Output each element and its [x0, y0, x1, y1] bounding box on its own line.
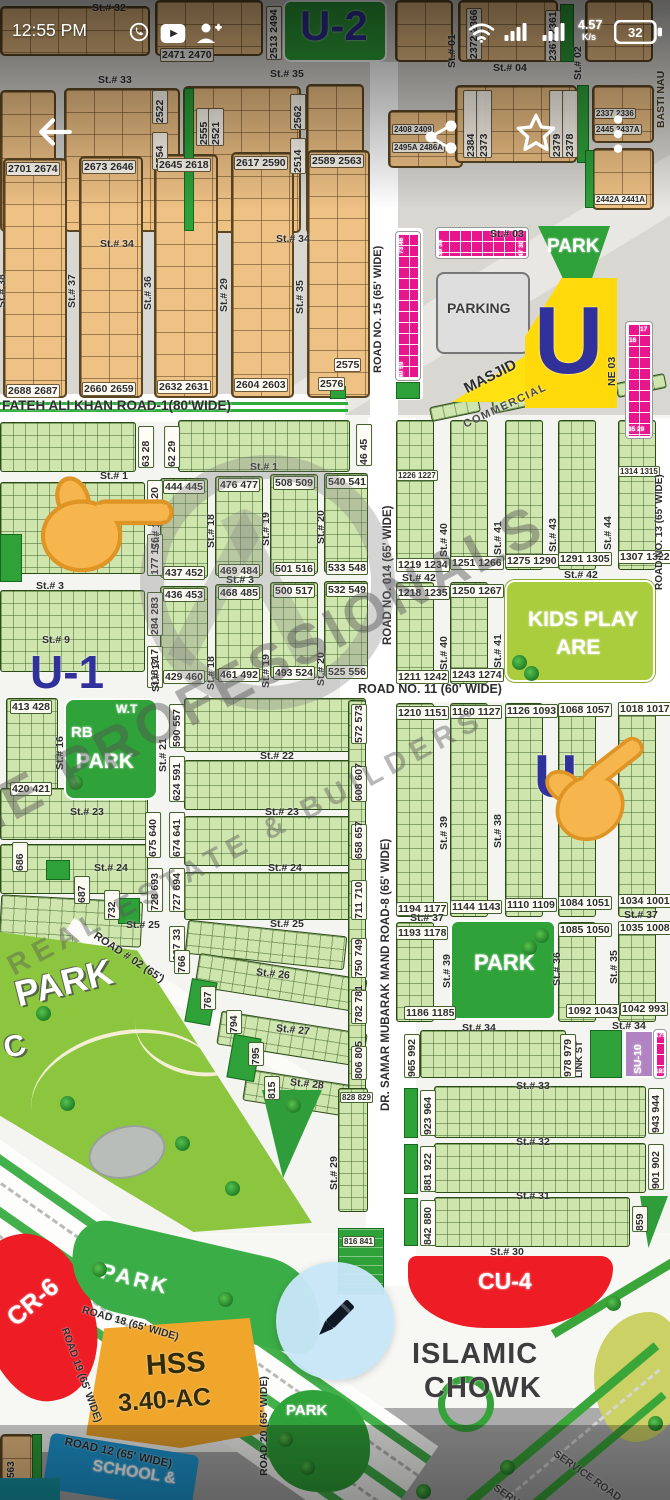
sector-label: U: [534, 286, 603, 396]
street-label: St.# 32: [516, 1136, 550, 1148]
edit-fab[interactable]: [276, 1262, 394, 1380]
plot-number: 624 591: [169, 756, 185, 802]
plot-number: 1035 1008: [618, 921, 670, 935]
plot-number: 2471 2470: [160, 48, 214, 62]
plot-strip-green: [404, 1198, 418, 1246]
street-label: St.# 17: [150, 640, 162, 692]
plot-number: 1193 1178: [396, 926, 448, 940]
plot-number: 1126 1093: [505, 704, 558, 718]
plot-number: 2378: [562, 90, 578, 158]
road-label: DR. SAMAR MUBARAK MAND ROAD-8 (65' WIDE): [380, 756, 393, 1111]
street-label: St.# 36: [142, 254, 154, 310]
plot-number: 436 453: [163, 588, 205, 602]
plot-number: 1160 1127: [450, 705, 502, 719]
plot-number: 46 45: [356, 424, 372, 466]
signal-bars-icon: [504, 22, 529, 42]
tree-icon: [175, 1136, 190, 1151]
plot-block: [420, 1030, 566, 1078]
tree-icon: [300, 1460, 315, 1475]
plot-number: 413 428: [10, 700, 52, 714]
street-label: St.# 34: [100, 238, 134, 250]
street-label: St.# 35: [608, 944, 620, 984]
plot-strip-green: [396, 382, 420, 399]
plot-block: [434, 1086, 646, 1138]
sector-label: U-1: [30, 646, 104, 699]
status-time: 12:55 PM: [12, 20, 87, 40]
street-label: St.# 38: [492, 793, 504, 848]
street-label: St.# 33: [516, 1080, 550, 1092]
wifi-icon: [468, 22, 495, 43]
street-label: St.# 23: [265, 806, 299, 818]
tree-icon: [606, 1296, 621, 1311]
plot-number: 2373: [476, 90, 492, 158]
plot-number: 572 573: [351, 704, 367, 744]
plot-number: 420 421: [10, 782, 52, 796]
road-label: ROAD NO. 014 (65' WIDE): [382, 440, 395, 645]
plot-number: 183: [655, 1068, 666, 1075]
person-add-icon: [196, 22, 222, 44]
chowk-label: CHOWK: [424, 1372, 542, 1405]
street-label: St.# 25: [270, 918, 304, 930]
street-label: St.# 3: [226, 574, 254, 586]
street-label: St.# 36: [551, 946, 563, 986]
street-label: St.# 32: [92, 2, 126, 14]
park-label: PARK: [286, 1402, 327, 1419]
plot-number: 658 657: [351, 824, 367, 860]
street-label: St.# 19: [260, 491, 272, 546]
street-label: St.# 18: [205, 493, 217, 548]
street-label: St.# 04: [493, 62, 527, 74]
plot-number: 1085 1050: [558, 923, 612, 937]
tree-icon: [278, 1432, 293, 1447]
street-label: St.# 37: [410, 912, 444, 924]
parking-label: PARKING: [447, 300, 511, 316]
street-label: St.# 9: [42, 634, 70, 646]
plot-number: 2513 2494: [266, 6, 282, 60]
back-arrow-icon[interactable]: [36, 116, 74, 148]
plot-number: 1042 993: [620, 1002, 668, 1016]
plot-block: [184, 872, 366, 920]
su10-label: SU-10: [632, 1036, 644, 1074]
plot-number: 501 516: [273, 562, 315, 576]
street-label: St.# 38: [0, 252, 8, 308]
plot-number: 1092 1043: [566, 1004, 620, 1018]
tree-icon: [286, 1098, 301, 1113]
teal-block: [0, 1478, 60, 1500]
plot-number: 590 557: [169, 704, 185, 748]
plot-number: 965 992: [404, 1034, 420, 1078]
plot-number: 2660 2659: [82, 382, 136, 396]
plot-number: 525 556: [326, 665, 368, 679]
plot-block: [184, 698, 366, 752]
street-label: St.# 01: [446, 22, 458, 68]
street-label: St.# 19: [260, 636, 272, 688]
plot-number: 782 781: [351, 990, 367, 1024]
plot-number: 2589 2563: [310, 154, 364, 168]
plot-number: 859: [632, 1206, 648, 1232]
plot-number: 828 829: [340, 1092, 373, 1103]
plot-number: 461 492: [218, 668, 260, 682]
street-label: St.# 35: [294, 258, 306, 314]
plot-number: 675 640: [145, 812, 161, 858]
kids-play-label: KIDS PLAY: [528, 608, 638, 632]
youtube-icon: [160, 24, 186, 43]
plot-number: 1243 1274: [450, 668, 504, 682]
street-label: LINK ST: [575, 1032, 586, 1078]
plot-block: [434, 1143, 646, 1193]
plot-number: 284 283: [147, 592, 163, 636]
pencil-icon: [308, 1292, 362, 1346]
plot-number: 540 541: [326, 475, 368, 489]
plot-number: 2575: [334, 358, 361, 372]
plot-block: [618, 420, 656, 570]
street-label: St.# 37: [624, 909, 658, 921]
plot-number: 901 902: [648, 1144, 664, 1190]
street-label: St.# 33: [98, 74, 132, 86]
plot-number: 2688 2687: [6, 384, 60, 398]
plot-strip-green: [585, 150, 594, 208]
plot-number: 429 460: [163, 670, 205, 684]
plot-block: [505, 420, 543, 570]
plot-number: 750 749: [351, 938, 367, 978]
plot-number: 1291 1305: [558, 552, 612, 566]
road-label: ROAD NO. 11 (60' WIDE): [358, 682, 502, 696]
street-label: St.# 44: [602, 498, 614, 550]
plot-number: 39 38: [437, 230, 444, 256]
plot-number: 1018 1017: [618, 702, 670, 716]
plot-number: 686: [12, 842, 28, 872]
plot-number: 508 509: [273, 476, 315, 490]
tree-icon: [534, 928, 549, 943]
street-label: St.# 37: [66, 252, 78, 308]
plot-block: [231, 152, 294, 398]
street-label: St.# 1: [250, 461, 278, 473]
street-label: St.# 29: [218, 256, 230, 312]
plot-number: 47 30: [518, 231, 525, 257]
road-label: ROAD 20 (65' WIDE): [258, 1356, 270, 1476]
park-label: PARK: [76, 750, 134, 774]
plot-number: 1219 1234: [396, 558, 450, 572]
plot-number: 732: [104, 890, 120, 920]
street-label: St.# 39: [441, 948, 453, 988]
signal-bars-icon: [542, 22, 567, 42]
street-label: St.# 20: [315, 489, 327, 544]
plot-block: [450, 703, 488, 917]
street-label: St.# 41: [492, 616, 504, 668]
plot-number: 2522: [152, 90, 168, 124]
plot-number: 1275 1290: [505, 554, 559, 568]
park-block-small: [0, 534, 22, 582]
road-label: ROAD NO. 15 (65' WIDE): [372, 205, 385, 373]
plot-number: 728 693: [147, 868, 163, 912]
tree-icon: [68, 775, 83, 790]
tree-icon: [225, 1181, 240, 1196]
plot-number: 1034 1001: [618, 894, 670, 908]
street-label: St.# 42: [564, 569, 598, 581]
plot-number: 476 477: [218, 478, 260, 492]
park-label: RB: [71, 724, 93, 741]
plot-number: 532 549: [326, 583, 368, 597]
plot-block: [3, 158, 67, 398]
plot-number: 795: [248, 1042, 264, 1066]
plot-block: [184, 760, 366, 810]
plot-strip-green: [32, 1434, 42, 1482]
plot-block: [338, 1088, 368, 1212]
plot-block: [395, 0, 453, 62]
park-label: W.T: [116, 703, 137, 717]
chowk-label: ISLAMIC: [412, 1338, 538, 1371]
plot-number: 1250 1267: [450, 584, 504, 598]
street-label: St.# 24: [94, 862, 128, 874]
tree-icon: [524, 666, 539, 681]
street-label: St.# 16: [54, 722, 66, 770]
pointing-hand-icon: [28, 462, 178, 584]
plot-strip-green: [404, 1088, 418, 1138]
plot-number: 2617 2590: [234, 156, 288, 170]
plot-number: 816 841: [342, 1236, 375, 1247]
plot-number: 2673 2646: [82, 160, 136, 174]
road-label: ROAD NO. 13 (65' WIDE): [654, 428, 666, 590]
street-label: St.# 39: [438, 795, 450, 850]
park-block-small: [590, 1030, 622, 1078]
plot-number: 923 964: [420, 1090, 436, 1136]
plot-number: 1144 1143: [450, 900, 502, 914]
plot-number: 1251 1266: [450, 556, 504, 570]
plot-number: 17: [640, 326, 647, 333]
street-label: St.# 40: [438, 618, 450, 670]
plot-number: 1084 1051: [558, 896, 612, 910]
share-icon[interactable]: [424, 118, 460, 156]
street-label: St.# 02: [572, 40, 584, 80]
street-label: St.# 43: [547, 500, 559, 552]
plot-number: 60 59: [398, 358, 405, 378]
plot-number: 2632 2631: [157, 380, 211, 394]
plot-number: 794: [226, 1010, 242, 1034]
plot-number: 1218 1235: [396, 586, 450, 600]
plot-block: [396, 703, 434, 917]
plot-number: 73 46: [398, 234, 405, 254]
street-label: St.# 40: [438, 505, 450, 557]
sector-label: U-2: [300, 2, 368, 50]
plot-number: 766: [174, 950, 190, 974]
street-label: St.# 34: [276, 233, 310, 245]
plot-number: 687: [74, 876, 90, 904]
street-label: St.# 24: [268, 862, 302, 874]
net-speed: 4.57: [578, 18, 602, 32]
plot-number: 608 607: [351, 766, 367, 802]
cu4-label: CU-4: [478, 1268, 532, 1294]
tree-icon: [500, 1460, 515, 1475]
plot-number: 674 641: [169, 812, 185, 858]
plot-block: [396, 420, 434, 570]
plot-number: 500 517: [273, 584, 315, 598]
plot-number: 842 880: [420, 1200, 436, 1246]
street-label: St.# 25: [126, 919, 160, 931]
street-label: St.# 42: [402, 572, 436, 584]
street-label: St.# 35: [270, 68, 304, 80]
street-label: St.# 22: [260, 750, 294, 762]
plot-number: 806 805: [351, 1046, 367, 1080]
plot-block: [450, 420, 488, 570]
street-label: St.# 34: [612, 1020, 646, 1032]
plot-number: 2521: [208, 108, 224, 146]
street-label: St.# 21: [157, 724, 169, 772]
plot-strip-green: [46, 860, 70, 880]
plot-block: [184, 816, 366, 866]
plot-number: 2442A 2441A: [594, 194, 647, 205]
plot-number: 468 485: [218, 586, 260, 600]
street-label: St.# 20: [315, 634, 327, 686]
plot-block: [434, 1197, 630, 1247]
street-label: St.# 30: [490, 1246, 524, 1258]
plot-number: 1110 1109: [505, 898, 557, 912]
street-label: St.# 23: [70, 806, 104, 818]
plot-number: 711 710: [351, 880, 367, 920]
plot-number: 2701 2674: [6, 162, 60, 176]
star-icon[interactable]: [514, 112, 558, 156]
tree-icon: [92, 1262, 107, 1277]
plot-block: [79, 156, 143, 398]
plot-number: 493 524: [273, 666, 315, 680]
overflow-menu-icon[interactable]: [612, 114, 624, 154]
plot-number: 767: [200, 986, 216, 1010]
battery-icon: 32: [614, 20, 662, 44]
plot-number: 1186 1185: [404, 1006, 456, 1020]
street-label: NE 03: [606, 330, 618, 386]
map-viewer: U-2 St.# 32 2513 2494 2471 2470 2372 236…: [0, 0, 670, 1500]
kids-play-label: ARE: [556, 636, 600, 660]
plot-number: 727 694: [169, 868, 185, 912]
hss-label: HSS: [145, 1346, 207, 1383]
plot-number: 533 548: [326, 561, 368, 575]
plot-strip-green: [404, 1144, 418, 1194]
plot-number: 2576: [318, 377, 345, 391]
plot-number: 815: [264, 1076, 280, 1100]
street-label: St.# 41: [492, 503, 504, 555]
street-label: St.# 29: [328, 1136, 340, 1190]
tree-icon: [60, 1096, 75, 1111]
street-label: St.# 18: [205, 638, 217, 690]
tree-icon: [416, 1484, 431, 1499]
road-label: FATEH ALI KHAN ROAD-1(80'WIDE): [2, 398, 231, 414]
plot-number: 563: [6, 1440, 18, 1478]
street-label: St.# 34: [462, 1022, 496, 1034]
plot-number: 2514: [290, 138, 306, 174]
net-speed-unit: K/s: [582, 32, 596, 42]
plot-number: 2604 2603: [234, 378, 288, 392]
plot-number: 2562: [290, 94, 306, 130]
whatsapp-icon: [128, 21, 150, 43]
tree-icon: [522, 940, 537, 955]
plot-number: 943 944: [648, 1088, 664, 1134]
plot-number: 2645 2618: [157, 158, 211, 172]
plot-number: 175: [655, 1032, 666, 1039]
plot-number: 1210 1151: [396, 706, 449, 720]
park-label: PARK: [547, 236, 599, 258]
tree-icon: [218, 1292, 233, 1307]
plot-block: [558, 420, 596, 570]
tree-icon: [648, 1416, 663, 1431]
plot-number: 16: [629, 337, 636, 344]
street-label: St.# 31: [516, 1190, 550, 1202]
plot-number: 881 922: [420, 1146, 436, 1192]
plot-number: 85 29: [628, 426, 644, 433]
plot-number: 1226 1227: [396, 470, 438, 481]
battery-percent: 32: [628, 25, 643, 40]
